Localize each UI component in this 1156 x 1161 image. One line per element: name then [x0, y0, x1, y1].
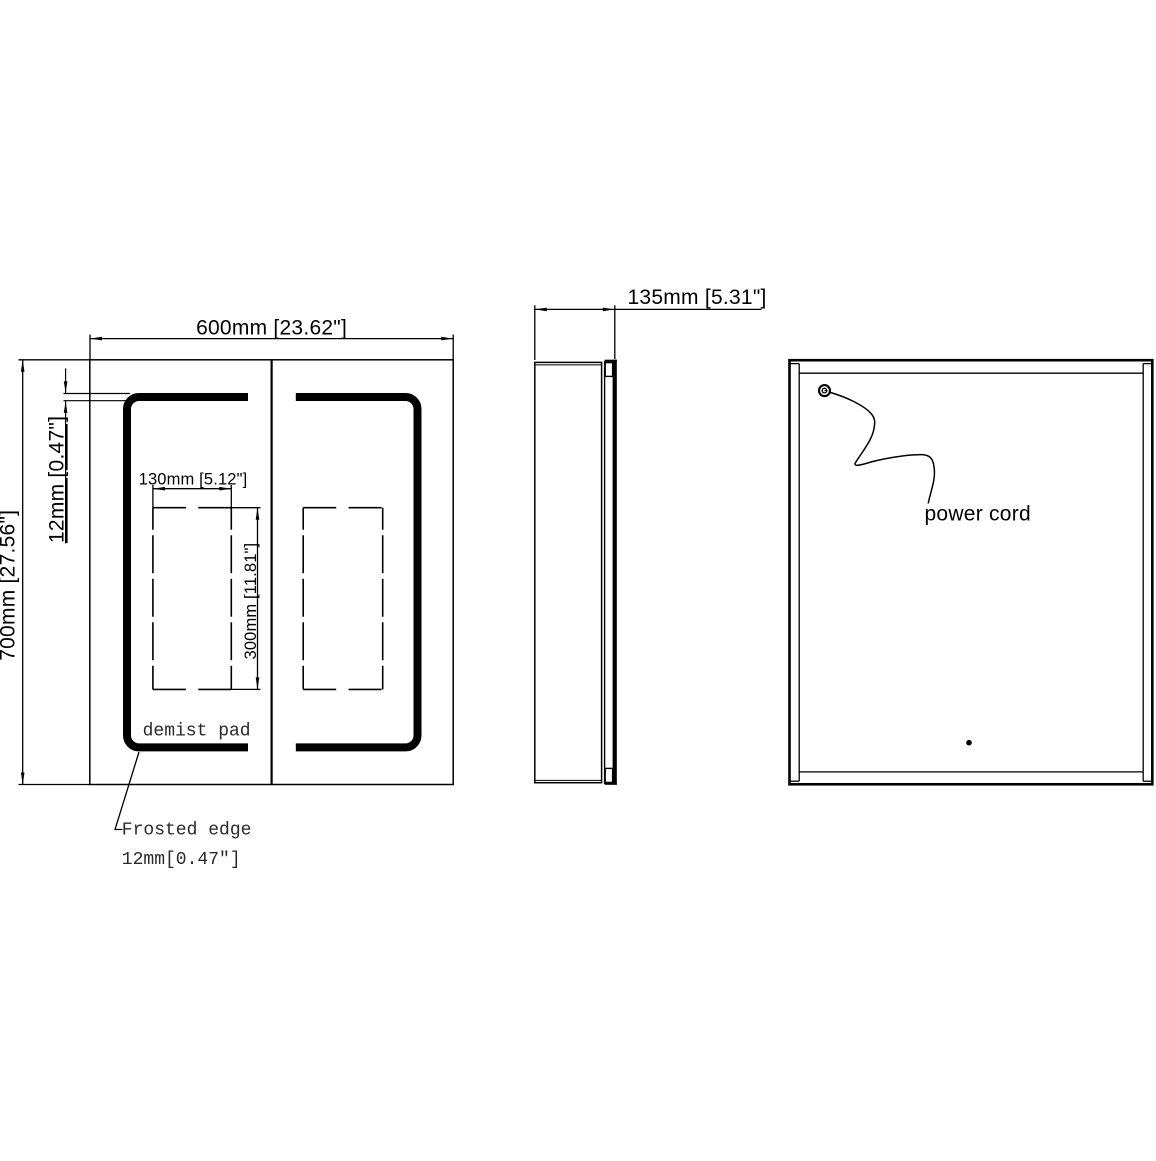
- svg-text:12mm [0.47"]: 12mm [0.47"]: [46, 416, 69, 543]
- svg-text:demist pad: demist pad: [143, 722, 251, 742]
- svg-text:600mm [23.62"]: 600mm [23.62"]: [196, 316, 347, 339]
- svg-text:130mm [5.12"]: 130mm [5.12"]: [139, 471, 248, 489]
- svg-text:700mm [27.56"]: 700mm [27.56"]: [0, 510, 20, 661]
- svg-text:12mm[0.47″]: 12mm[0.47″]: [122, 850, 241, 870]
- svg-text:power cord: power cord: [925, 503, 1031, 526]
- svg-text:135mm [5.31"]: 135mm [5.31"]: [628, 286, 767, 309]
- svg-text:300mm [11.81"]: 300mm [11.81"]: [242, 543, 260, 660]
- svg-text:Frosted edge: Frosted edge: [122, 821, 252, 841]
